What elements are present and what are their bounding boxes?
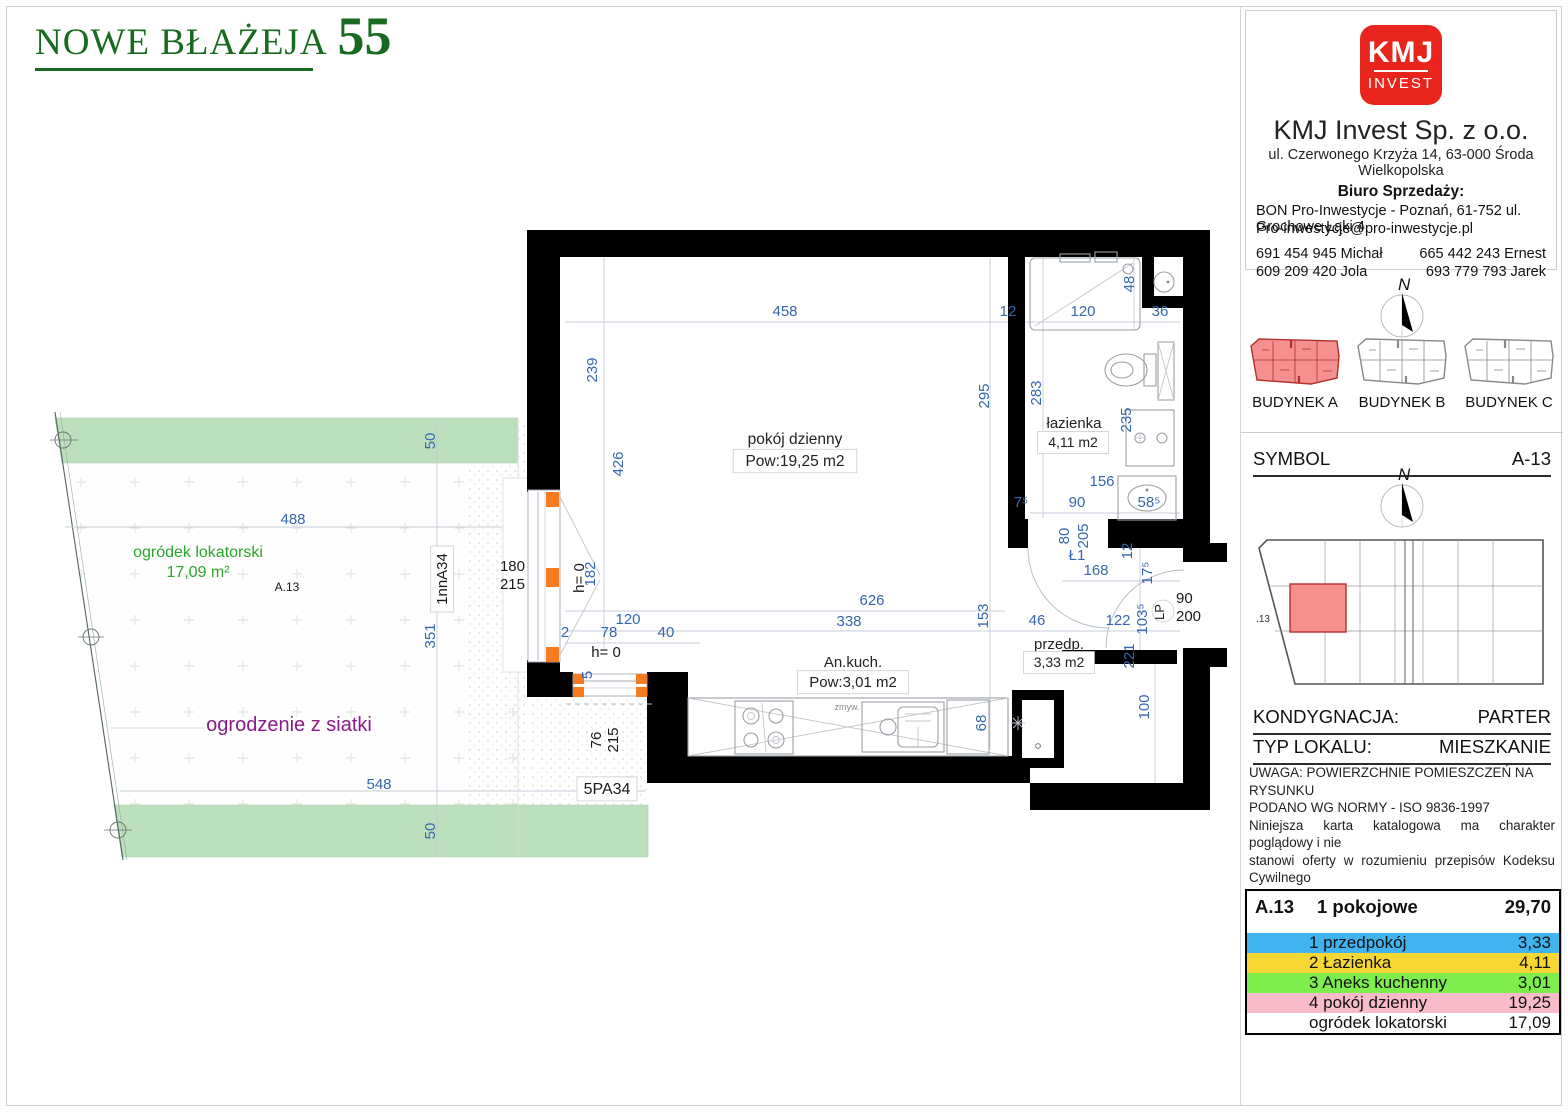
building-b-label: BUDYNEK B — [1359, 394, 1446, 411]
table-total-area: 29,70 — [1505, 896, 1559, 918]
svg-text:ogrodzenie z siatki: ogrodzenie z siatki — [206, 714, 372, 736]
disclaimer-text: UWAGA: POWIERZCHNIE POMIESZCZEŃ NA RYSUN… — [1249, 764, 1555, 887]
window-code-5pa34: 5PA34 — [577, 777, 637, 801]
svg-text:2: 2 — [561, 624, 569, 641]
svg-text:215: 215 — [605, 727, 622, 752]
fence-label: ogrodzenie z siatki — [206, 714, 372, 736]
table-spacer — [1247, 923, 1559, 933]
dim-168: 168 — [1083, 562, 1108, 579]
dim-68: 68 — [973, 715, 990, 732]
svg-text:80: 80 — [1056, 528, 1073, 545]
svg-text:5: 5 — [579, 671, 596, 679]
dim-295: 295 — [976, 383, 993, 408]
garden-name: ogródek lokatorski — [133, 544, 263, 561]
svg-text:626: 626 — [859, 592, 884, 609]
dim-entry-200: 200 — [1176, 608, 1201, 625]
area-row: ogródek lokatorski17,09 — [1247, 1013, 1559, 1033]
room-living-area: Pow:19,25 m2 — [733, 449, 857, 473]
dim-50-bottom: 50 — [422, 823, 439, 840]
svg-text:3,33 m2: 3,33 m2 — [1034, 654, 1085, 670]
dim-76: 76 — [588, 732, 605, 749]
divider — [1241, 432, 1563, 433]
svg-text:łazienka: łazienka — [1046, 415, 1102, 432]
niche-basin — [1154, 272, 1174, 292]
window-code-1nna34: 1nnA34 — [431, 546, 454, 612]
dim-205: 205 — [1075, 523, 1092, 548]
dim-458: 458 — [772, 303, 797, 320]
svg-text:48: 48 — [1121, 276, 1138, 293]
dim-175: 17⁵ — [1139, 562, 1156, 585]
disclaimer-line: PODANO WG NORMY - ISO 9836-1997 — [1249, 799, 1555, 817]
logo-divider — [1374, 70, 1428, 72]
dim-40: 40 — [658, 624, 675, 641]
typ-lokalu-value: MIESZKANIE — [1439, 736, 1551, 758]
svg-text:17⁵: 17⁵ — [1139, 562, 1156, 585]
svg-text:58⁵: 58⁵ — [1138, 494, 1161, 511]
svg-text:90: 90 — [1069, 494, 1086, 511]
building-b[interactable]: BUDYNEK B — [1352, 336, 1452, 411]
svg-text:78: 78 — [601, 624, 618, 641]
dim-90-bath: 90 — [1069, 494, 1086, 511]
room-area: 3,33 — [1518, 933, 1559, 953]
compass-north-2: N — [1241, 468, 1563, 526]
building-c[interactable]: BUDYNEK C — [1459, 336, 1559, 411]
green-band-bottom — [114, 805, 648, 857]
dim-221: 221 — [1121, 643, 1138, 668]
label-h0-window: h= 0 — [571, 563, 588, 593]
disclaimer-line: stanowi oferty w rozumieniu przepisów Ko… — [1249, 852, 1555, 887]
dim-180: 180 — [500, 558, 525, 575]
company-address: ul. Czerwonego Krzyża 14, 63-000 Środa W… — [1246, 147, 1556, 179]
room-hall-name: przedp. — [1034, 636, 1084, 653]
dim-75: 7⁵ — [1014, 494, 1029, 511]
svg-text:90: 90 — [1176, 590, 1193, 607]
development-logo: NOWE BŁAŻEJA 55 — [35, 16, 392, 71]
utility-shaft — [1012, 690, 1064, 768]
garden-unit-label: A.13 — [275, 580, 300, 594]
phone-michal: 691 454 945 Michał — [1256, 245, 1383, 263]
svg-text:338: 338 — [836, 613, 861, 630]
svg-text:5PA34: 5PA34 — [584, 781, 631, 798]
room-area: 4,11 — [1519, 953, 1559, 973]
window-marker — [546, 568, 559, 587]
dim-426: 426 — [610, 451, 627, 476]
compass-needle — [1402, 293, 1413, 332]
svg-text:LP: LP — [1152, 604, 1167, 620]
svg-text:Pow:3,01 m2: Pow:3,01 m2 — [809, 674, 897, 691]
dim-122: 122 — [1105, 612, 1130, 629]
dim-12-top: 12 — [1000, 303, 1017, 320]
room-area: 17,09 — [1508, 1013, 1559, 1033]
svg-text:46: 46 — [1029, 612, 1046, 629]
area-row: 2 Łazienka4,11 — [1247, 953, 1559, 973]
overview-unit-label: .13 — [1256, 614, 1270, 625]
compass-north-1: N — [1241, 278, 1563, 336]
svg-text:pokój dzienny: pokój dzienny — [748, 431, 843, 448]
dim-36: 36 — [1152, 303, 1169, 320]
dim-entry-90: 90 — [1176, 590, 1193, 607]
dim-488: 488 — [280, 511, 305, 528]
floor-plan-drawing: 4581212036482394262952832351569058⁵7⁵802… — [0, 0, 1240, 1112]
svg-text:156: 156 — [1089, 473, 1114, 490]
typ-lokalu-label: TYP LOKALU: — [1253, 736, 1372, 758]
svg-text:36: 36 — [1152, 303, 1169, 320]
typ-lokalu-row: TYP LOKALU: MIESZKANIE — [1253, 736, 1551, 765]
overview-highlighted-unit[interactable] — [1290, 584, 1346, 632]
dim-351: 351 — [422, 623, 439, 648]
table-type: 1 pokojowe — [1317, 896, 1505, 918]
sales-office-email[interactable]: Pro-inwestycje@pro-inwestycje.pl — [1256, 221, 1473, 237]
svg-text:122: 122 — [1105, 612, 1130, 629]
svg-text:488: 488 — [280, 511, 305, 528]
green-band-top — [55, 418, 518, 463]
svg-text:12: 12 — [1119, 543, 1136, 560]
room-name: 2 Łazienka — [1247, 953, 1519, 973]
area-row: 3 Aneks kuchenny3,01 — [1247, 973, 1559, 993]
svg-text:295: 295 — [976, 383, 993, 408]
svg-text:205: 205 — [1075, 523, 1092, 548]
svg-text:Pow:19,25 m2: Pow:19,25 m2 — [745, 453, 844, 470]
dim-585: 58⁵ — [1138, 494, 1161, 511]
area-table-header: A.13 1 pokojowe 29,70 — [1247, 891, 1559, 923]
dim-50-top: 50 — [422, 433, 439, 450]
svg-text:7⁵: 7⁵ — [1014, 494, 1029, 511]
room-name: 1 przedpokój — [1247, 933, 1518, 953]
svg-text:200: 200 — [1176, 608, 1201, 625]
room-living-name: pokój dzienny — [748, 431, 843, 448]
svg-text:76: 76 — [588, 732, 605, 749]
company-name: KMJ Invest Sp. z o.o. — [1246, 115, 1556, 146]
window-marker — [636, 674, 647, 684]
sales-office-heading: Biuro Sprzedaży: — [1246, 183, 1556, 201]
svg-text:68: 68 — [973, 715, 990, 732]
dim-100: 100 — [1136, 694, 1153, 719]
svg-text:548: 548 — [366, 776, 391, 793]
area-row: 1 przedpokój3,33 — [1247, 933, 1559, 953]
building-a[interactable]: BUDYNEK A — [1245, 336, 1345, 411]
development-name: NOWE BŁAŻEJA — [35, 21, 328, 64]
sink-label: zmyw. — [834, 702, 859, 712]
building-selector: BUDYNEK A BUDYNEK B BUDYNEK C — [1245, 336, 1559, 411]
dim-12-mid: 12 — [1119, 543, 1136, 560]
svg-text:120: 120 — [1070, 303, 1095, 320]
room-kitchen-name: An.kuch. — [824, 654, 882, 671]
room-hall-area: 3,33 m2 — [1024, 652, 1095, 674]
floor-overview-plan: .13 — [1245, 526, 1559, 701]
room-name: 4 pokój dzienny — [1247, 993, 1508, 1013]
svg-text:235: 235 — [1118, 407, 1135, 432]
svg-text:h= 0: h= 0 — [571, 563, 588, 593]
dim-338: 338 — [836, 613, 861, 630]
svg-text:ogródek lokatorski: ogródek lokatorski — [133, 544, 263, 561]
svg-text:221: 221 — [1121, 643, 1138, 668]
area-row: 4 pokój dzienny19,25 — [1247, 993, 1559, 1013]
logo-text-bottom: INVEST — [1368, 75, 1434, 92]
svg-text:100: 100 — [1136, 694, 1153, 719]
dim-548: 548 — [366, 776, 391, 793]
dim-156: 156 — [1089, 473, 1114, 490]
room-area: 3,01 — [1518, 973, 1559, 993]
dim-215-door: 215 — [500, 576, 525, 593]
room-kitchen-area: Pow:3,01 m2 — [798, 671, 909, 694]
svg-text:4,11 m2: 4,11 m2 — [1048, 434, 1098, 450]
svg-text:239: 239 — [584, 357, 601, 382]
dim-46: 46 — [1029, 612, 1046, 629]
garden-area: 17,09 m² — [166, 564, 230, 581]
window-marker — [546, 492, 559, 507]
window-sill-outside — [503, 478, 528, 672]
room-name: 3 Aneks kuchenny — [1247, 973, 1518, 993]
svg-text:283: 283 — [1028, 380, 1045, 405]
compass-needle — [1402, 483, 1413, 522]
svg-text:17,09 m²: 17,09 m² — [166, 564, 230, 581]
info-sidebar: KMJ INVEST KMJ Invest Sp. z o.o. ul. Cze… — [1240, 6, 1563, 1106]
kitchen-sink — [862, 702, 944, 752]
dim-2: 2 — [561, 624, 569, 641]
svg-text:103⁵: 103⁵ — [1134, 603, 1151, 634]
door-label-lp: LP — [1152, 604, 1167, 620]
logo-text-top: KMJ — [1368, 38, 1434, 68]
svg-text:zmyw.: zmyw. — [834, 702, 859, 712]
phone-ernest: 665 442 243 Ernest — [1419, 245, 1546, 263]
dim-626: 626 — [859, 592, 884, 609]
disclaimer-line: Niniejsza karta katalogowa ma charakter … — [1249, 817, 1555, 852]
area-table: A.13 1 pokojowe 29,70 1 przedpokój3,332 … — [1245, 889, 1561, 1035]
window-marker — [546, 647, 559, 662]
dim-120-win: 120 — [615, 611, 640, 628]
svg-text:40: 40 — [658, 624, 675, 641]
svg-text:A.13: A.13 — [275, 580, 300, 594]
svg-text:50: 50 — [422, 823, 439, 840]
svg-text:426: 426 — [610, 451, 627, 476]
kondygnacja-value: PARTER — [1478, 706, 1551, 728]
development-number: 55 — [338, 16, 392, 56]
dim-215-win: 215 — [605, 727, 622, 752]
dim-1035: 103⁵ — [1134, 603, 1151, 634]
compass-n-label: N — [1398, 275, 1411, 294]
svg-text:153: 153 — [975, 603, 992, 628]
window-marker — [636, 687, 647, 697]
svg-text:168: 168 — [1083, 562, 1108, 579]
compass-n-label: N — [1398, 465, 1411, 484]
svg-text:180: 180 — [500, 558, 525, 575]
dim-283: 283 — [1028, 380, 1045, 405]
window-marker — [573, 687, 584, 697]
disclaimer-line: UWAGA: POWIERZCHNIE POMIESZCZEŃ NA RYSUN… — [1249, 764, 1555, 799]
svg-text:h= 0: h= 0 — [591, 644, 621, 661]
logo-underline — [35, 68, 313, 71]
symbol-mark — [1011, 716, 1025, 730]
svg-text:przedp.: przedp. — [1034, 636, 1084, 653]
building-a-label: BUDYNEK A — [1252, 394, 1338, 411]
label-h0-kitchen: h= 0 — [591, 644, 621, 661]
svg-text:An.kuch.: An.kuch. — [824, 654, 882, 671]
catalog-card-page: NOWE BŁAŻEJA 55 — [0, 0, 1568, 1112]
svg-text:1nnA34: 1nnA34 — [434, 553, 451, 605]
building-c-label: BUDYNEK C — [1465, 394, 1553, 411]
table-unit: A.13 — [1247, 896, 1317, 918]
company-box: KMJ INVEST KMJ Invest Sp. z o.o. ul. Cze… — [1245, 10, 1557, 270]
kondygnacja-row: KONDYGNACJA: PARTER — [1253, 706, 1551, 735]
room-bathroom-name: łazienka — [1046, 415, 1102, 432]
svg-text:120: 120 — [615, 611, 640, 628]
svg-text:12: 12 — [1000, 303, 1017, 320]
kmj-invest-logo: KMJ INVEST — [1360, 25, 1442, 105]
room-name: ogródek lokatorski — [1247, 1013, 1508, 1033]
svg-text:215: 215 — [500, 576, 525, 593]
dim-78: 78 — [601, 624, 618, 641]
area-table-rows: 1 przedpokój3,332 Łazienka4,113 Aneks ku… — [1247, 933, 1559, 1033]
dim-153: 153 — [975, 603, 992, 628]
kondygnacja-label: KONDYGNACJA: — [1253, 706, 1399, 728]
svg-text:351: 351 — [422, 623, 439, 648]
room-area: 19,25 — [1508, 993, 1559, 1013]
svg-text:50: 50 — [422, 433, 439, 450]
room-bathroom-area: 4,11 m2 — [1038, 432, 1109, 454]
dim-80: 80 — [1056, 528, 1073, 545]
dim-5: 5 — [579, 671, 596, 679]
dim-120-bath: 120 — [1070, 303, 1095, 320]
symbol-value: A-13 — [1512, 448, 1551, 470]
dim-235: 235 — [1118, 407, 1135, 432]
dim-48: 48 — [1121, 276, 1138, 293]
symbol-label: SYMBOL — [1253, 448, 1330, 470]
dim-239: 239 — [584, 357, 601, 382]
svg-text:458: 458 — [772, 303, 797, 320]
